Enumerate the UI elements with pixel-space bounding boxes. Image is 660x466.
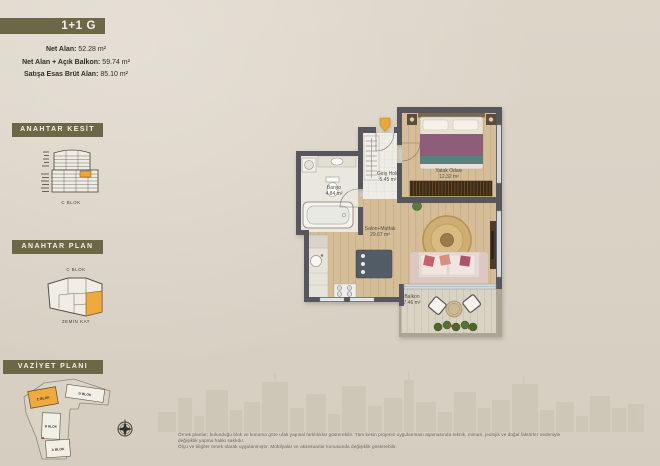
key-plan-header: ANAHTAR PLAN bbox=[12, 240, 103, 254]
kitchen-sink bbox=[311, 256, 322, 267]
stat-net-alan-balkon: Net Alan + Açık Balkon: 59.74 m² bbox=[0, 57, 152, 70]
disclaimer-line-2: Ölçü ve bilgiler örnek olarak uygulanmış… bbox=[178, 444, 562, 450]
key-section-caption: C BLOK bbox=[40, 200, 102, 205]
highlighted-floor-cell bbox=[80, 171, 91, 177]
bed bbox=[418, 113, 485, 169]
disclaimer-line-1: Örnek planlar; bulunduğu blok ve konuma … bbox=[178, 432, 562, 444]
compass-icon bbox=[115, 419, 135, 439]
unit-title: 1+1 G bbox=[61, 20, 96, 32]
stat-net-alan: Net Alan: 52.28 m² bbox=[0, 44, 152, 57]
wardrobe bbox=[410, 181, 492, 196]
site-marker-dot bbox=[42, 437, 44, 439]
brochure-page: 1+1 G Net Alan: 52.28 m² Net Alan + Açık… bbox=[0, 0, 660, 466]
svg-text:B BLOK: B BLOK bbox=[45, 424, 58, 428]
entrance-marker-icon bbox=[380, 118, 390, 132]
tv-unit bbox=[490, 221, 496, 269]
coffee-table bbox=[441, 234, 454, 247]
site-block-a: A BLOK bbox=[45, 439, 70, 458]
site-plan-header: VAZİYET PLANI bbox=[3, 360, 103, 374]
bath-sink bbox=[331, 158, 343, 165]
stove bbox=[334, 284, 356, 298]
stat-brut-alan: Satışa Esas Brüt Alan: 85.10 m² bbox=[0, 69, 152, 82]
key-plan-block-label: C BLOK bbox=[45, 267, 107, 272]
sofa bbox=[410, 252, 488, 286]
unit-stats: Net Alan: 52.28 m² Net Alan + Açık Balko… bbox=[0, 44, 152, 82]
unit-title-bar: 1+1 G bbox=[0, 18, 105, 34]
floor-plan: Giriş Holü 5.45 m² Banyo 4.84 m² Yatak O… bbox=[288, 103, 504, 343]
key-section-header: ANAHTAR KESİT bbox=[12, 123, 103, 137]
key-plan-diagram bbox=[46, 275, 106, 317]
key-section-diagram bbox=[40, 146, 102, 198]
city-skyline bbox=[158, 368, 658, 432]
site-block-b: B BLOK bbox=[42, 413, 61, 440]
kitchen-island bbox=[356, 250, 392, 278]
key-plan-caption: ZEMİN KAT bbox=[45, 319, 107, 324]
highlighted-unit bbox=[86, 291, 102, 316]
hall-closet bbox=[364, 136, 379, 180]
site-plan-diagram: C BLOK D BLOK B BLOK A BLOK bbox=[16, 377, 120, 463]
disclaimer: Örnek planlar; bulunduğu blok ve konuma … bbox=[178, 432, 562, 450]
toilet bbox=[327, 183, 338, 197]
balcony-table bbox=[446, 301, 462, 317]
